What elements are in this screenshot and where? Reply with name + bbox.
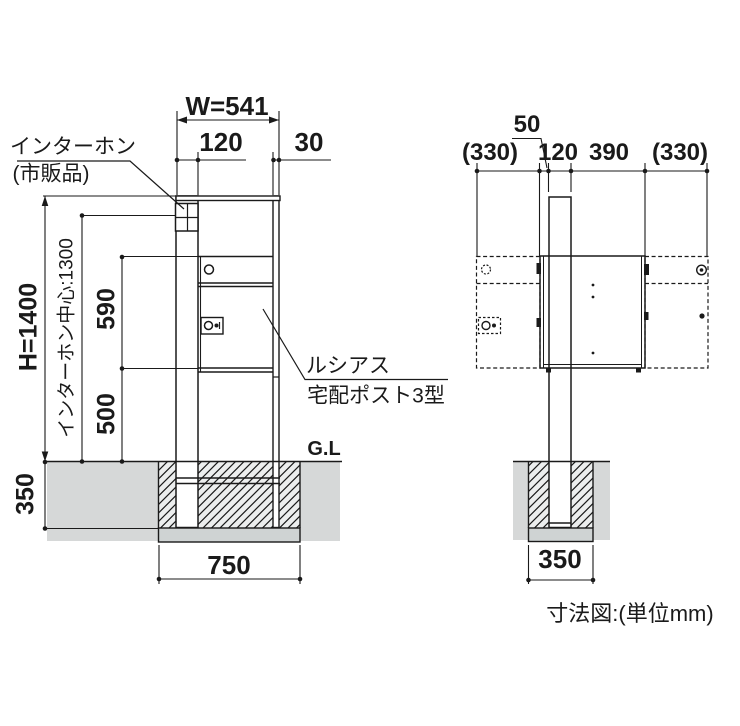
product-label-line1: ルシアス xyxy=(306,356,390,377)
dim-box-height: 590 xyxy=(95,288,120,330)
dim-post-width: 120 xyxy=(199,129,242,155)
intercom-box xyxy=(176,204,199,232)
rear-knob-icon xyxy=(699,313,704,318)
dim-box-depth: 390 xyxy=(589,141,629,165)
dim-intercom-center-height: インターホン中心:1300 xyxy=(58,238,77,438)
side-post xyxy=(549,197,571,528)
door-swing-rear-details xyxy=(697,265,707,318)
key-lock-icon xyxy=(201,318,223,335)
door-swing-front xyxy=(477,257,541,369)
drawing-caption: 寸法図:(単位mm) xyxy=(546,603,713,625)
side-footing xyxy=(529,528,594,542)
dim-foundation-depth: 350 xyxy=(14,473,39,515)
dim-post-depth: 120 xyxy=(538,141,578,165)
dim-side-bar-width: 30 xyxy=(295,129,324,155)
intercom-label-line2: (市販品) xyxy=(13,164,90,185)
door-button-icon xyxy=(205,265,214,274)
door-button-icon xyxy=(482,265,491,274)
box-foot xyxy=(636,368,641,373)
intercom-label-line1: インターホン xyxy=(10,137,136,158)
ground-level-label: G.L xyxy=(307,439,340,459)
dim-total-height: H=1400 xyxy=(17,283,42,371)
dim-total-width: W=541 xyxy=(185,93,268,119)
product-label-line2: 宅配ポスト3型 xyxy=(307,386,445,407)
front-footing xyxy=(159,528,301,542)
box-foot xyxy=(546,368,551,373)
dim-rear-door-swing: (330) xyxy=(652,141,708,165)
side-view xyxy=(475,139,710,585)
dim-foundation-width: 750 xyxy=(207,552,250,578)
dim-front-door-swing: (330) xyxy=(462,141,518,165)
delivery-box-front xyxy=(199,257,274,373)
front-frame xyxy=(176,196,280,528)
dim-side-foundation-width: 350 xyxy=(538,546,581,572)
dimension-drawing: W=541 120 30 H=1400 インターホン中心:1300 590 50… xyxy=(0,0,740,726)
dim-front-offset: 50 xyxy=(514,113,541,137)
dim-box-ground-clearance: 500 xyxy=(95,393,120,435)
door-swing-front-lock-detail xyxy=(482,322,496,330)
front-top-rail xyxy=(176,196,280,201)
